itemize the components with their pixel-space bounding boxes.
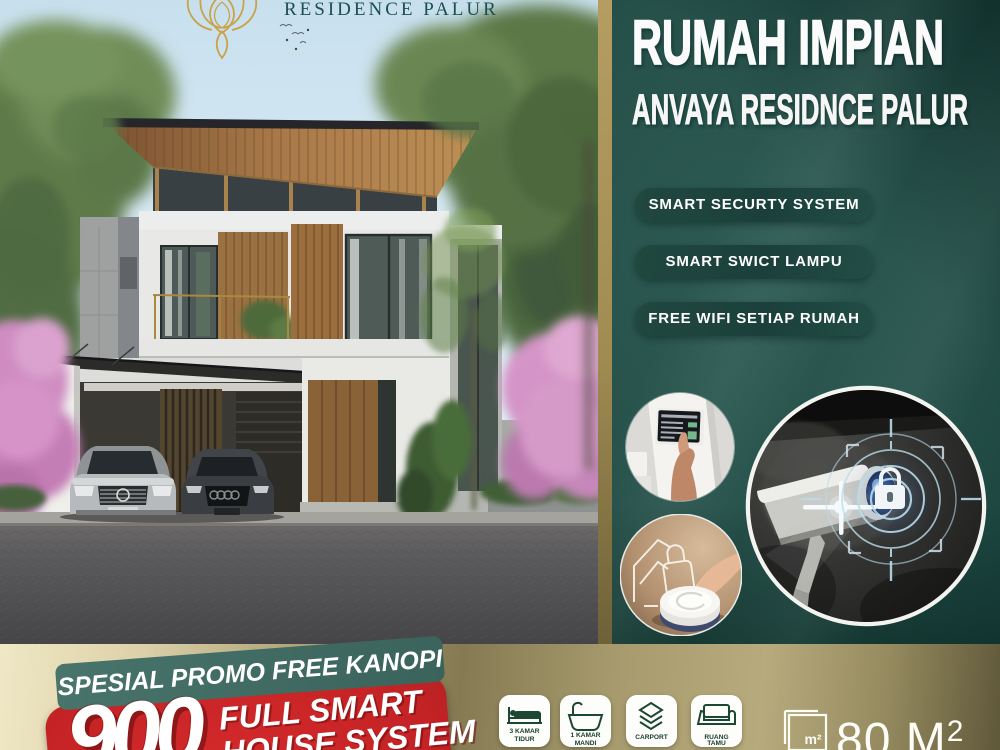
svg-text:MANDI: MANDI bbox=[575, 740, 597, 747]
svg-text:RUMAH IMPIAN: RUMAH IMPIAN bbox=[632, 8, 944, 78]
svg-text:RESIDENCE PALUR: RESIDENCE PALUR bbox=[284, 0, 499, 20]
svg-text:TAMU: TAMU bbox=[707, 740, 726, 747]
svg-text:ANVAYA RESIDNCE PALUR: ANVAYA RESIDNCE PALUR bbox=[632, 86, 968, 134]
svg-text:3 KAMAR: 3 KAMAR bbox=[509, 728, 539, 735]
svg-text:CARPORT: CARPORT bbox=[635, 734, 668, 741]
svg-text:m²: m² bbox=[804, 731, 821, 747]
svg-text:TIDUR: TIDUR bbox=[514, 736, 534, 743]
svg-text:1 KAMAR: 1 KAMAR bbox=[570, 732, 600, 739]
